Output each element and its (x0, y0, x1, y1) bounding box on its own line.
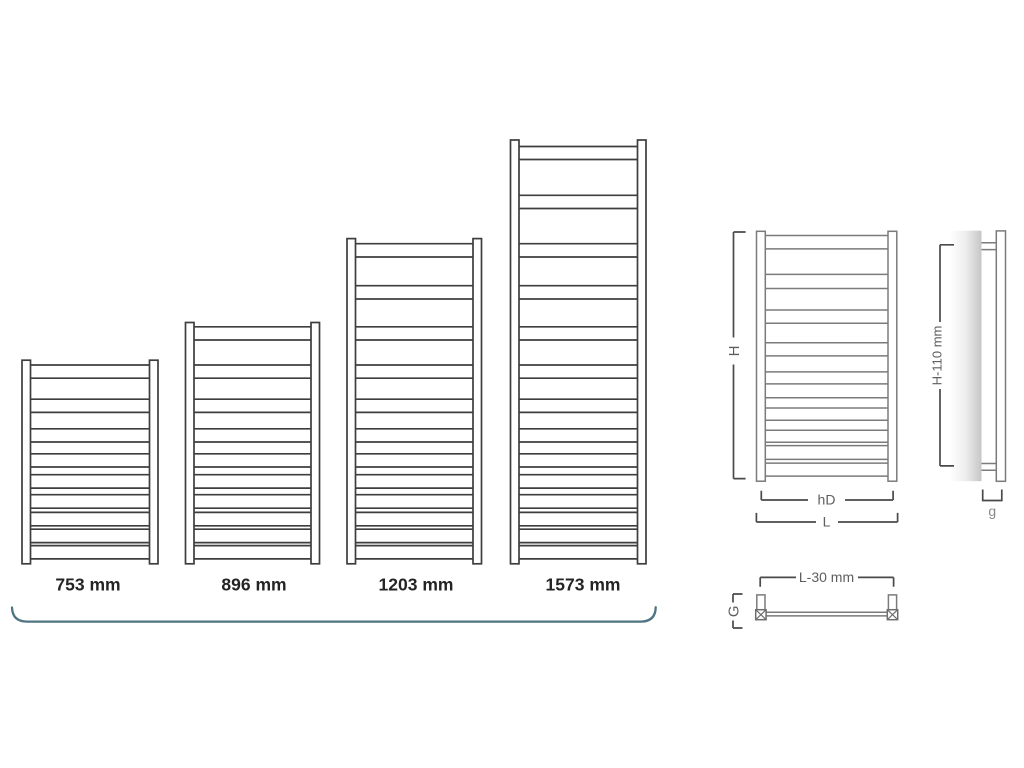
svg-text:1203 mm: 1203 mm (379, 575, 454, 595)
svg-text:1573 mm: 1573 mm (546, 575, 621, 595)
svg-text:H: H (726, 346, 743, 357)
svg-text:L-30 mm: L-30 mm (799, 569, 854, 585)
svg-text:896 mm: 896 mm (221, 575, 286, 595)
svg-text:753 mm: 753 mm (55, 575, 120, 595)
svg-text:g: g (988, 503, 996, 519)
svg-text:L: L (823, 514, 831, 530)
svg-text:G: G (726, 605, 743, 617)
svg-text:hD: hD (818, 492, 836, 508)
svg-text:H-110 mm: H-110 mm (930, 326, 945, 386)
